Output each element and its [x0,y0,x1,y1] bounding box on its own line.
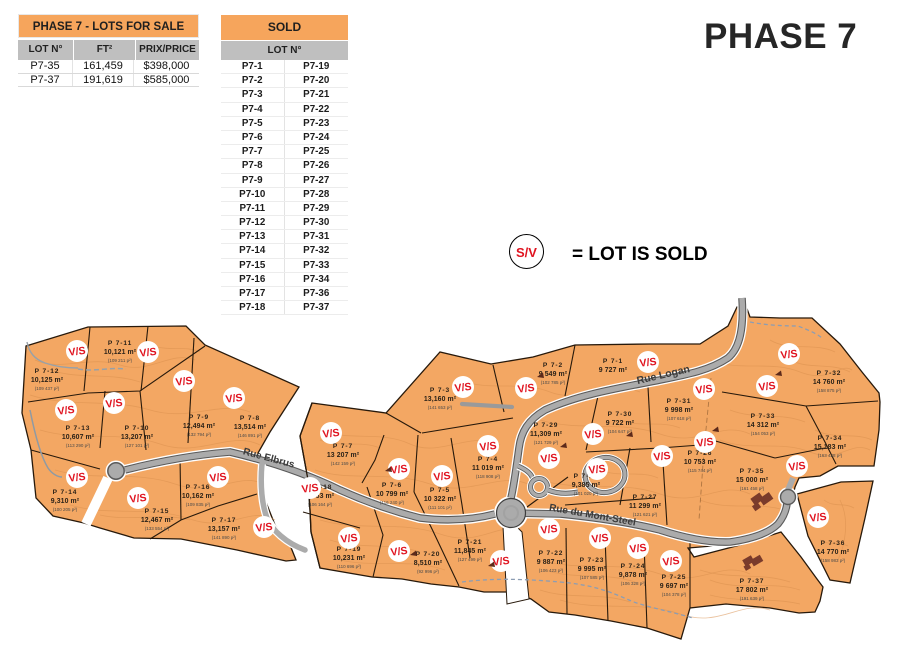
svg-text:(104 647 p²): (104 647 p²) [608,429,633,434]
svg-text:P 7-16: P 7-16 [186,484,211,491]
svg-text:V/S: V/S [129,492,147,506]
svg-text:(102 785 p²): (102 785 p²) [541,380,566,385]
svg-text:V/S: V/S [653,450,671,464]
svg-text:P 7-20: P 7-20 [416,551,441,558]
svg-text:(107 618 p²): (107 618 p²) [667,416,692,421]
svg-text:P 7-14: P 7-14 [53,489,78,496]
svg-text:10,125 m²: 10,125 m² [31,377,64,384]
svg-text:V/S: V/S [479,440,497,454]
svg-text:P 7-35: P 7-35 [740,468,765,475]
svg-text:(121 729 p²): (121 729 p²) [534,440,559,445]
svg-text:V/S: V/S [662,555,680,569]
svg-text:P 7-4: P 7-4 [478,456,498,463]
svg-text:V/S: V/S [175,375,193,389]
svg-text:V/S: V/S [780,348,798,362]
svg-text:13,157 m²: 13,157 m² [208,526,241,533]
svg-text:10 799 m²: 10 799 m² [376,491,409,498]
svg-text:P 7-33: P 7-33 [751,413,776,420]
svg-text:V/S: V/S [301,482,319,496]
svg-text:8,510 m²: 8,510 m² [414,560,443,567]
svg-text:9 722 m²: 9 722 m² [606,420,635,427]
svg-text:10 322 m²: 10 322 m² [424,496,457,503]
svg-text:V/S: V/S [390,463,408,477]
svg-text:13,207 m²: 13,207 m² [121,434,154,441]
svg-text:14 760 m²: 14 760 m² [813,379,846,386]
svg-text:13,514 m²: 13,514 m² [234,424,267,431]
svg-text:12,467 m²: 12,467 m² [141,517,174,524]
svg-text:V/S: V/S [433,470,451,484]
svg-text:10,121 m²: 10,121 m² [104,349,137,356]
svg-text:(104 378 p²): (104 378 p²) [662,592,687,597]
svg-text:V/S: V/S [540,523,558,537]
svg-text:P 7-7: P 7-7 [333,443,353,450]
svg-text:(141 890 p²): (141 890 p²) [212,535,237,540]
svg-text:17 802 m²: 17 802 m² [736,587,769,594]
svg-text:(101 020 p²): (101 020 p²) [574,491,599,496]
svg-text:P 7-37: P 7-37 [740,578,765,585]
svg-text:P 7-2: P 7-2 [543,362,563,369]
svg-text:(110 696 p²): (110 696 p²) [337,564,362,569]
svg-text:(109 211 p²): (109 211 p²) [108,358,133,363]
svg-text:9,878 m²: 9,878 m² [619,572,648,579]
svg-text:P 7-25: P 7-25 [662,574,687,581]
svg-text:V/S: V/S [57,404,75,418]
svg-text:(107 585 p²): (107 585 p²) [580,575,605,580]
svg-text:P 7-6: P 7-6 [382,482,402,489]
svg-text:(191 639 p²): (191 639 p²) [740,596,765,601]
svg-text:P 7-13: P 7-13 [66,425,91,432]
svg-text:(109 437 p²): (109 437 p²) [35,386,60,391]
svg-text:P 7-23: P 7-23 [580,557,605,564]
svg-text:V/S: V/S [809,511,827,525]
svg-text:13,160 m²: 13,160 m² [424,396,457,403]
svg-text:(132 794 p²): (132 794 p²) [187,432,212,437]
svg-text:11 019 m²: 11 019 m² [472,465,505,472]
svg-text:P 7-29: P 7-29 [534,422,559,429]
svg-text:11,845 m²: 11,845 m² [454,548,487,555]
svg-text:(154 053 p²): (154 053 p²) [751,431,776,436]
svg-text:9 727 m²: 9 727 m² [599,367,628,374]
svg-text:(92 996 p²): (92 996 p²) [417,569,440,574]
svg-text:V/S: V/S [225,392,243,406]
svg-text:10,607 m²: 10,607 m² [62,434,95,441]
svg-text:12,494 m²: 12,494 m² [183,423,216,430]
svg-text:P 7-30: P 7-30 [608,411,633,418]
svg-text:(111 101 p²): (111 101 p²) [428,505,452,510]
svg-text:V/S: V/S [454,381,472,395]
svg-text:(100 205 p²): (100 205 p²) [53,507,78,512]
svg-text:(127 101 p²): (127 101 p²) [125,443,150,448]
svg-text:(163 428 p²): (163 428 p²) [818,453,843,458]
svg-text:9 887 m²: 9 887 m² [537,559,566,566]
svg-text:P 7-12: P 7-12 [35,368,60,375]
svg-text:P 7-24: P 7-24 [621,563,646,570]
svg-text:(142 159 p²): (142 159 p²) [331,461,356,466]
svg-text:15,183 m²: 15,183 m² [814,444,847,451]
svg-text:P 7-17: P 7-17 [212,517,237,524]
svg-text:V/S: V/S [68,345,86,359]
svg-text:P 7-36: P 7-36 [821,540,846,547]
svg-text:P 7-31: P 7-31 [667,398,692,405]
svg-text:15 000 m²: 15 000 m² [736,477,769,484]
svg-text:P 7-11: P 7-11 [108,340,132,347]
svg-text:(161 458 p²): (161 458 p²) [740,486,765,491]
svg-text:P 7-8: P 7-8 [240,415,260,422]
svg-text:V/S: V/S [209,471,227,485]
svg-text:V/S: V/S [695,383,713,397]
svg-text:V/S: V/S [322,427,340,441]
svg-text:V/S: V/S [68,471,86,485]
svg-text:9 697 m²: 9 697 m² [660,583,689,590]
svg-text:V/S: V/S [788,460,806,474]
svg-text:V/S: V/S [139,346,157,360]
svg-text:V/S: V/S [340,532,358,546]
svg-text:14 312 m²: 14 312 m² [747,422,780,429]
svg-text:P 7-21: P 7-21 [458,539,483,546]
svg-text:(158 875 p²): (158 875 p²) [817,388,842,393]
svg-text:10,162 m²: 10,162 m² [182,493,215,500]
svg-text:9 998 m²: 9 998 m² [665,407,694,414]
svg-text:V/S: V/S [588,463,606,477]
svg-text:P 7-27: P 7-27 [633,494,658,501]
svg-text:(127 499 p²): (127 499 p²) [458,557,483,562]
svg-text:V/S: V/S [517,382,535,396]
svg-text:11 299 m²: 11 299 m² [629,503,662,510]
svg-text:V/S: V/S [584,428,602,442]
svg-text:P 7-34: P 7-34 [818,435,843,442]
svg-text:(133 554 p²): (133 554 p²) [145,526,170,531]
svg-text:9,310 m²: 9,310 m² [51,498,80,505]
svg-text:9,385 m²: 9,385 m² [572,482,601,489]
svg-text:V/S: V/S [540,452,558,466]
svg-text:(141 653 p²): (141 653 p²) [428,405,453,410]
svg-text:P 7-3: P 7-3 [430,387,450,394]
svg-text:(146 891 p²): (146 891 p²) [238,433,263,438]
svg-text:P 7-22: P 7-22 [539,550,564,557]
svg-text:V/S: V/S [591,532,609,546]
svg-text:(158 983 p²): (158 983 p²) [821,558,846,563]
svg-text:(118 908 p²): (118 908 p²) [476,474,501,479]
svg-text:(115 744 p²): (115 744 p²) [688,468,713,473]
svg-text:(106 328 p²): (106 328 p²) [621,581,646,586]
svg-text:V/S: V/S [255,521,273,535]
svg-text:V/S: V/S [639,356,657,370]
svg-text:V/S: V/S [696,436,714,450]
svg-text:(109 835 p²): (109 835 p²) [186,502,211,507]
svg-text:P 7-5: P 7-5 [430,487,450,494]
svg-text:V/S: V/S [390,545,408,559]
svg-text:V/S: V/S [758,380,776,394]
svg-text:13 207 m²: 13 207 m² [327,452,360,459]
svg-text:(113 290 p²): (113 290 p²) [66,443,91,448]
svg-text:V/S: V/S [629,542,647,556]
svg-text:10 753 m²: 10 753 m² [684,459,717,466]
svg-text:P 7-15: P 7-15 [145,508,170,515]
svg-text:P 7-10: P 7-10 [125,425,150,432]
svg-text:(106 423 p²): (106 423 p²) [539,568,564,573]
svg-text:10,231 m²: 10,231 m² [333,555,366,562]
svg-text:P 7-9: P 7-9 [189,414,209,421]
svg-text:11,309 m²: 11,309 m² [530,431,563,438]
svg-text:P 7-32: P 7-32 [817,370,842,377]
svg-text:(106 164 p²): (106 164 p²) [308,502,333,507]
svg-text:V/S: V/S [105,397,123,411]
svg-text:(116 240 p²): (116 240 p²) [380,500,405,505]
svg-text:P 7-1: P 7-1 [603,358,623,365]
svg-text:14 770 m²: 14 770 m² [817,549,850,556]
svg-text:9 995 m²: 9 995 m² [578,566,607,573]
svg-text:(121 621 p²): (121 621 p²) [633,512,658,517]
